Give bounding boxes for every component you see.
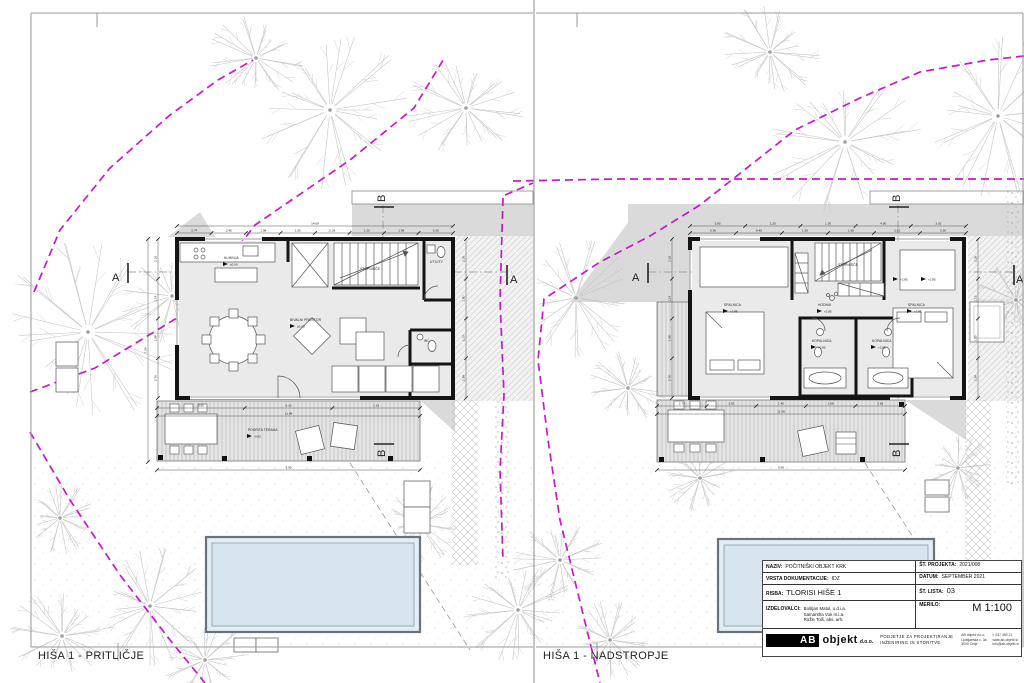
level-value: ±0.00 <box>230 263 238 267</box>
level-value: +2.85 <box>878 346 886 350</box>
svg-text:3.03: 3.03 <box>935 222 941 226</box>
svg-text:2.38: 2.38 <box>462 375 466 381</box>
company-contact: t: 047 450 21www.ab-objekt.siinfo@ab-obj… <box>993 633 1019 646</box>
svg-text:1.13: 1.13 <box>974 295 978 301</box>
section-marker-b: B <box>376 195 388 202</box>
svg-text:2.26: 2.26 <box>462 256 466 262</box>
svg-text:3.82: 3.82 <box>728 402 734 406</box>
level-value: ±0.00 <box>297 325 305 329</box>
level-value: -0.02 <box>254 435 261 439</box>
svg-text:1.14: 1.14 <box>668 295 672 301</box>
section-marker-b: B <box>891 450 903 457</box>
svg-text:2.16: 2.16 <box>154 256 158 262</box>
svg-text:11.98: 11.98 <box>285 412 293 416</box>
svg-text:1.14: 1.14 <box>154 295 158 301</box>
svg-text:2.24: 2.24 <box>329 229 335 233</box>
svg-text:3.55: 3.55 <box>198 404 204 408</box>
svg-text:1.60: 1.60 <box>802 229 808 233</box>
room-label: WC <box>424 339 430 343</box>
hedge-right <box>1006 185 1020 485</box>
caption-ground-floor: HIŠA 1 - PRITLIČJE <box>38 650 144 662</box>
vrsta-label: VRSTA DOKUMENTACIJE: <box>766 576 829 582</box>
svg-text:1.98: 1.98 <box>154 335 158 341</box>
svg-text:9.90: 9.90 <box>285 466 291 470</box>
vrsta-value: IDZ <box>832 576 840 582</box>
svg-text:8.45: 8.45 <box>756 229 762 233</box>
st-lista-value: 03 <box>947 586 955 595</box>
svg-text:1.50: 1.50 <box>848 229 854 233</box>
svg-text:2.26: 2.26 <box>974 256 978 262</box>
svg-text:1.15: 1.15 <box>373 404 379 408</box>
svg-text:2.38: 2.38 <box>974 375 978 381</box>
svg-text:3.63: 3.63 <box>877 402 883 406</box>
svg-text:2.76: 2.76 <box>154 375 158 381</box>
floor-plan-ground: KUHINJA ±0.00 STOPNIŠČE BIVALNI PROSTOR … <box>144 222 468 472</box>
caption-upper-floor: HIŠA 1 - NADSTROPJE <box>543 650 669 662</box>
svg-text:0.36: 0.36 <box>710 229 716 233</box>
level-value: +2.85 <box>914 310 922 314</box>
room-label: KUHINJA <box>224 256 240 260</box>
section-marker-b: B <box>376 450 388 457</box>
naziv-label: NAZIV: <box>766 564 782 570</box>
svg-text:14.00: 14.00 <box>311 222 319 226</box>
room-label: STOPNIŠČE <box>838 262 859 267</box>
level-value: +2.85 <box>730 310 738 314</box>
svg-text:1.00: 1.00 <box>295 229 301 233</box>
svg-text:9.90: 9.90 <box>778 466 784 470</box>
svg-text:7.26: 7.26 <box>144 347 148 353</box>
title-block-row: IZDELOVALCI: Boštjan Matul, u.d.i.a.Sama… <box>763 601 1021 629</box>
svg-text:2.74: 2.74 <box>191 229 197 233</box>
company-logo: AB objekt d.o.o. <box>763 632 876 649</box>
svg-text:1.20: 1.20 <box>770 222 776 226</box>
risba-value: TLORISI HIŠE 1 <box>786 588 841 597</box>
room-label: UTILITY <box>430 260 444 264</box>
path-hatch-left <box>452 400 478 565</box>
title-block-logo-row: AB objekt d.o.o. PODJETJE ZA PROJEKTIRAN… <box>763 629 1021 651</box>
room-label: STOPNIŠČE <box>360 266 381 271</box>
pool-left <box>206 537 420 632</box>
site-plan-sheet: KUHINJA ±0.00 STOPNIŠČE BIVALNI PROSTOR … <box>0 0 1024 683</box>
svg-text:11.98: 11.98 <box>777 410 785 414</box>
svg-text:3.85: 3.85 <box>715 222 721 226</box>
logo-ab-mark: AB <box>766 634 819 647</box>
izdelovalci-label: IZDELOVALCI: <box>766 606 801 612</box>
room-label: HODNIK <box>818 303 832 307</box>
svg-text:2.16: 2.16 <box>668 256 672 262</box>
company-desc-line2: INŽENIRING IN STORITVE <box>880 640 953 646</box>
svg-text:3.63: 3.63 <box>894 229 900 233</box>
merilo-label: MERILO: <box>919 602 940 608</box>
room-label: KOPALNICA <box>812 339 832 343</box>
datum-value: SEPTEMBER 2021 <box>942 574 985 580</box>
svg-text:1.50: 1.50 <box>974 335 978 341</box>
section-marker-a: A <box>510 274 518 286</box>
logo-suffix: d.o.o. <box>860 639 873 645</box>
svg-text:1.98: 1.98 <box>668 335 672 341</box>
room-label: POKRITA TERASA <box>248 428 278 432</box>
section-marker-a: A <box>112 272 120 284</box>
svg-text:1.98: 1.98 <box>398 229 404 233</box>
room-label: SPALNICA <box>908 303 926 307</box>
risba-label: RISBA: <box>766 591 783 597</box>
svg-text:4.90: 4.90 <box>880 222 886 226</box>
room-label: SPALNICA <box>724 303 742 307</box>
svg-text:0.36: 0.36 <box>433 229 439 233</box>
svg-text:1.40: 1.40 <box>778 402 784 406</box>
dim-chain: 2.161.141.982.76 <box>154 237 160 400</box>
title-block-row: VRSTA DOKUMENTACIJE: IDZ DATUM: SEPTEMBE… <box>763 573 1021 585</box>
floor-plan-upper: SPALNICA +2.85 SPALNICA +2.85 HODNIK +2.… <box>655 222 1004 472</box>
room-label: BIVALNI PROSTOR <box>290 318 322 322</box>
svg-text:0.36: 0.36 <box>940 229 946 233</box>
merilo-value: M 1:100 <box>972 602 1018 614</box>
company-address: AB objekt d.o.o.Ljubljanska c. 3a3000 Ce… <box>961 633 986 646</box>
svg-text:1.50: 1.50 <box>462 295 466 301</box>
title-block-row: RISBA: TLORISI HIŠE 1 ŠT. LISTA: 03 <box>763 585 1021 601</box>
staircase <box>815 243 881 281</box>
title-block-row: NAZIV: POČITNIŠKI OBJEKT KRK ŠT. PROJEKT… <box>763 561 1021 573</box>
svg-text:1.98: 1.98 <box>828 402 834 406</box>
st-projekta-value: 2021/008 <box>959 562 980 568</box>
level-value: +2.85 <box>824 310 832 314</box>
level-value: +2.85 <box>900 278 908 282</box>
svg-text:2.74: 2.74 <box>679 402 685 406</box>
title-block: NAZIV: POČITNIŠKI OBJEKT KRK ŠT. PROJEKT… <box>762 560 1022 657</box>
svg-text:6.13: 6.13 <box>285 404 291 408</box>
path-hatch-right <box>965 400 991 560</box>
section-marker-a: A <box>632 272 640 284</box>
st-projekta-label: ŠT. PROJEKTA: <box>919 562 956 568</box>
svg-text:1.98: 1.98 <box>260 229 266 233</box>
room-label: KOPALNICA <box>872 339 892 343</box>
closet <box>292 243 328 287</box>
section-marker-b: B <box>891 195 903 202</box>
level-value: +2.85 <box>818 346 826 350</box>
st-lista-label: ŠT. LISTA: <box>919 589 943 595</box>
datum-label: DATUM: <box>919 574 938 580</box>
level-value: +2.85 <box>928 278 936 282</box>
svg-text:1.50: 1.50 <box>825 222 831 226</box>
naziv-value: POČITNIŠKI OBJEKT KRK <box>785 564 846 570</box>
svg-text:2.76: 2.76 <box>668 375 672 381</box>
logo-text: objekt <box>822 634 857 646</box>
izdelovalci-list: Boštjan Matul, u.d.i.a.Samantha Vuk m.i.… <box>804 606 846 623</box>
svg-text:1.13: 1.13 <box>462 335 466 341</box>
svg-text:1.20: 1.20 <box>364 229 370 233</box>
company-description: PODJETJE ZA PROJEKTIRANJE INŽENIRING IN … <box>876 634 957 645</box>
svg-text:2.45: 2.45 <box>226 229 232 233</box>
staircase <box>334 243 418 285</box>
